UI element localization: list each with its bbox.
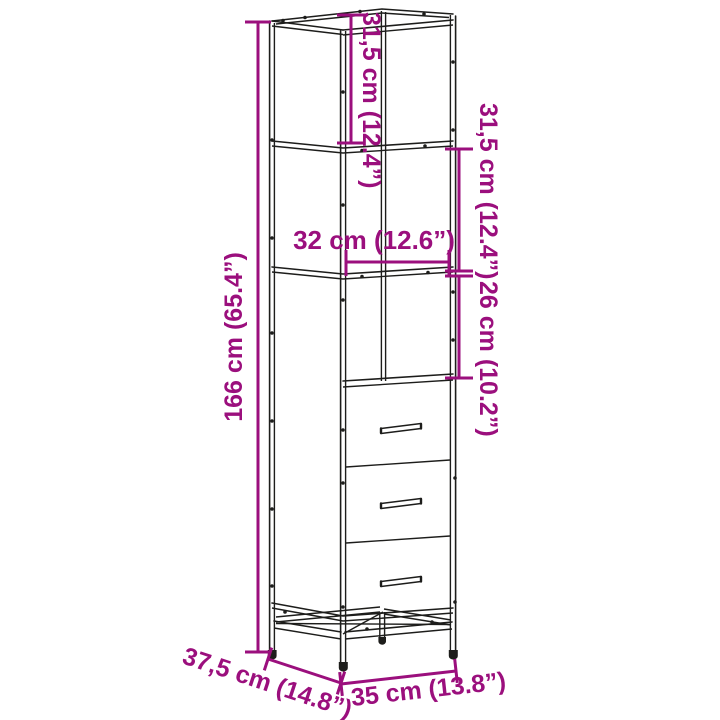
dimension-total-height: 166 cm (65.4”) [220, 22, 271, 652]
cabinet-bottom-edges [272, 603, 453, 621]
dimension-top-section-height: 31,5 cm (12.4”) [337, 12, 385, 189]
foot-front-right [449, 650, 458, 660]
second-section-height-label: 31,5 cm (12.4”) [474, 103, 502, 280]
dimension-niche-height: 26 cm (10.2”) [445, 276, 502, 437]
total-height-label: 166 cm (65.4”) [220, 252, 248, 422]
drawer-handle [381, 499, 421, 509]
drawer-handle [381, 577, 421, 587]
dimension-depth: 37,5 cm (14.8”) [179, 642, 355, 720]
cabinet-drawers [346, 424, 450, 587]
legs-and-feet [268, 637, 458, 672]
dimension-outer-width: 35 cm (13.8”) [340, 659, 508, 712]
foot-front-left [339, 662, 348, 672]
niche-height-label: 26 cm (10.2”) [474, 281, 502, 437]
drawer-handle [381, 424, 421, 434]
base-frame [274, 607, 452, 639]
top-section-height-label: 31,5 cm (12.4”) [357, 12, 385, 189]
diagram-canvas: 166 cm (65.4”) 31,5 cm (12.4”) 31,5 cm (… [0, 0, 720, 720]
inner-width-label: 32 cm (12.6”) [293, 225, 455, 255]
cabinet-dimension-diagram: 166 cm (65.4”) 31,5 cm (12.4”) 31,5 cm (… [0, 0, 720, 720]
depth-label: 37,5 cm (14.8”) [179, 642, 355, 720]
foot-back-right [378, 637, 386, 645]
dimension-annotations: 166 cm (65.4”) 31,5 cm (12.4”) 31,5 cm (… [179, 12, 507, 720]
